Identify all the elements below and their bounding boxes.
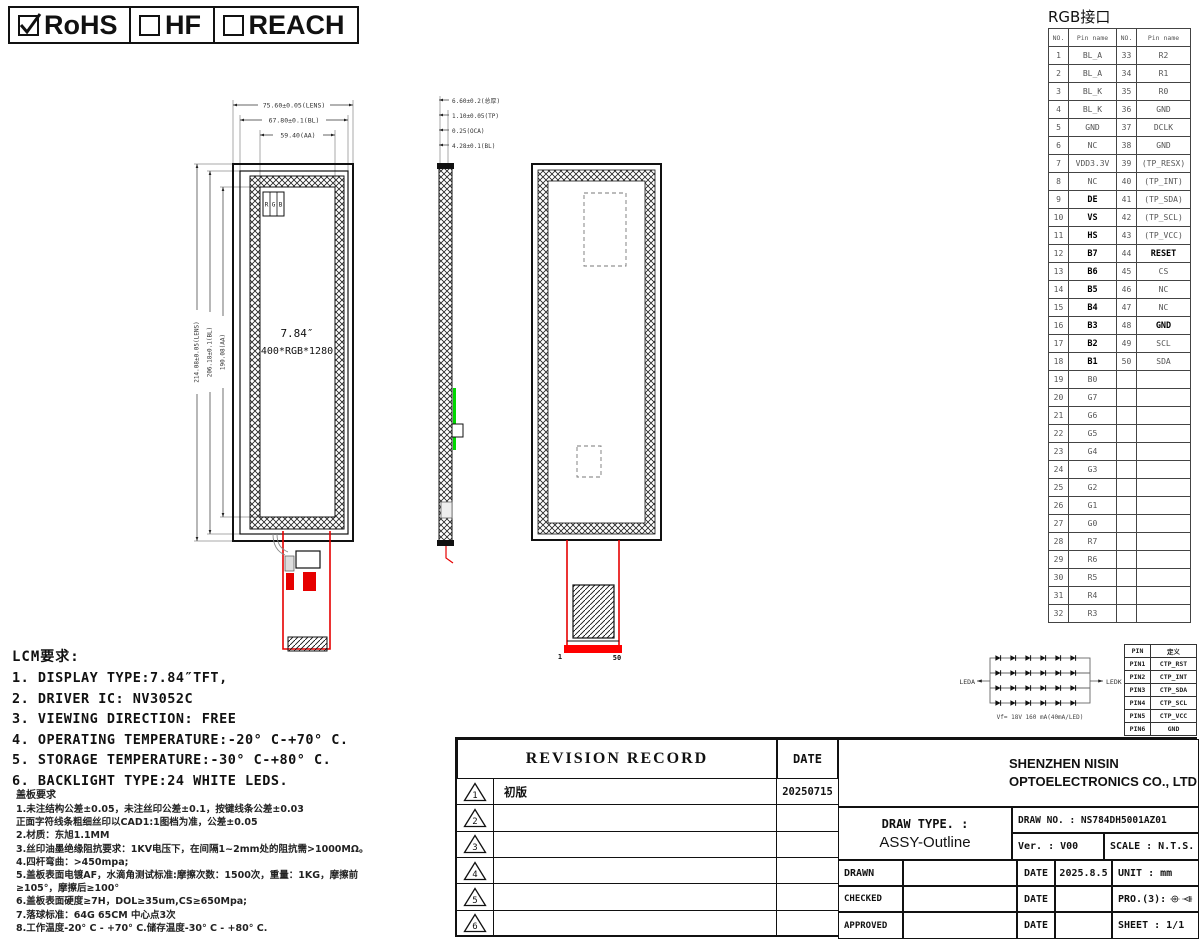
led-symbol: [1070, 670, 1075, 676]
pin-name: [1137, 407, 1191, 425]
pin-number: 31: [1049, 587, 1069, 605]
pin-name: [1137, 443, 1191, 461]
dim-bl-height: 206.18±0.1(BL): [207, 327, 214, 378]
revision-triangle-icon: 2: [463, 808, 487, 828]
svg-text:1: 1: [472, 791, 477, 801]
pin-number: 33: [1117, 47, 1137, 65]
pin-number: 15: [1049, 299, 1069, 317]
pin-name: R6: [1069, 551, 1117, 569]
pin-number: 43: [1117, 227, 1137, 245]
cover-item: 正面字符线条粗细丝印以CAD1:1图档为准，公差±0.05: [16, 816, 456, 829]
pin-name: [1137, 497, 1191, 515]
pin-name: (TP_SDA): [1137, 191, 1191, 209]
revision-description: [494, 832, 777, 857]
pin-name: R5: [1069, 569, 1117, 587]
pin-number: 14: [1049, 281, 1069, 299]
led-spec-caption: Vf= 18V 160 mA(40mA/LED): [997, 714, 1084, 721]
pin-name: B5: [1069, 281, 1117, 299]
title-block: REVISION RECORD DATE 1初版2025071523456 SH…: [455, 737, 1197, 937]
pin-number: 29: [1049, 551, 1069, 569]
pin-name: BL_A: [1069, 65, 1117, 83]
side-green-part: [453, 388, 456, 450]
led-symbol: [1070, 685, 1075, 691]
svg-text:4: 4: [472, 870, 477, 880]
cover-requirements-title: 盖板要求: [16, 786, 456, 801]
dim-oca-thickness: 0.25(OCA): [452, 128, 485, 135]
dim-aa-width: 59.40(AA): [280, 132, 315, 140]
dim-lens-width: 75.60±0.05(LENS): [263, 102, 326, 110]
cover-item: 4.四杆弯曲：>450mpa;: [16, 856, 456, 869]
pin-number: [1117, 461, 1137, 479]
compliance-label: HF: [165, 10, 201, 41]
pin-number: 1: [1049, 47, 1069, 65]
pin-name: (TP_VCC): [1137, 227, 1191, 245]
cover-item: ≥105°，摩擦后≥100°: [16, 882, 456, 895]
pin-number: 26: [1049, 497, 1069, 515]
lcm-requirements-title: LCM要求:: [12, 646, 482, 666]
svg-text:G: G: [272, 202, 276, 209]
revision-record-header: REVISION RECORD: [457, 739, 777, 779]
pin-number: 9: [1049, 191, 1069, 209]
pin-number: 25: [1049, 479, 1069, 497]
drawn-date-label: DATE: [1017, 860, 1055, 886]
pin-name: (TP_SCL): [1137, 209, 1191, 227]
ctp-pin-table: PIN定义PIN1CTP_RSTPIN2CTP_INTPIN3CTP_SDAPI…: [1124, 644, 1197, 736]
company-line2: OPTOELECTRONICS CO., LTD: [1009, 773, 1197, 791]
compliance-item-hf: HF: [129, 6, 215, 44]
pin-table-header: NO.: [1117, 29, 1137, 47]
cover-list: 1.未注结构公差±0.05，未注丝印公差±0.1，按键线条公差±0.03正面字符…: [16, 803, 456, 935]
led-symbol: [1025, 700, 1030, 706]
pin-table-header: NO.: [1049, 29, 1069, 47]
revision-number: 4: [457, 858, 494, 883]
pin-number: 6: [1049, 137, 1069, 155]
led-symbol: [1010, 685, 1015, 691]
company-name: SHENZHEN NISIN OPTOELECTRONICS CO., LTD: [838, 739, 1199, 807]
led-symbol: [995, 655, 1000, 661]
led-symbol: [1055, 655, 1060, 661]
pin1-label: 1: [558, 653, 562, 661]
pin-name: BL_K: [1069, 83, 1117, 101]
fpc-front: [273, 531, 330, 651]
fpc-stiffener: [573, 585, 614, 638]
pin-number: 23: [1049, 443, 1069, 461]
revision-triangle-icon: 6: [463, 913, 487, 933]
led-symbol: [1040, 700, 1045, 706]
pin50-label: 50: [613, 654, 621, 662]
revision-number: 2: [457, 805, 494, 830]
pin-number: [1117, 407, 1137, 425]
revision-row: 4: [457, 858, 838, 884]
pin-name: [1137, 605, 1191, 623]
revision-number: 6: [457, 911, 494, 936]
pin-name: [1137, 551, 1191, 569]
checked-checkbox-icon: [18, 15, 39, 36]
pin-name: [1137, 425, 1191, 443]
dim-bl-thickness: 4.28±0.1(BL): [452, 143, 495, 150]
pin-name: R4: [1069, 587, 1117, 605]
pin-name: R0: [1137, 83, 1191, 101]
pin-name: NC: [1069, 173, 1117, 191]
pin-table-header: Pin name: [1069, 29, 1117, 47]
pin-number: 38: [1117, 137, 1137, 155]
svg-text:R: R: [265, 202, 269, 209]
pin-number: 30: [1049, 569, 1069, 587]
scale-cell: SCALE : N.T.S.: [1104, 833, 1199, 860]
svg-text:6: 6: [472, 922, 477, 932]
pin-name: B2: [1069, 335, 1117, 353]
leda-label: LEDA: [959, 678, 975, 686]
revision-date: [777, 858, 838, 883]
svg-text:3: 3: [472, 843, 477, 853]
front-view: 75.60±0.05(LENS) 67.80±0.1(BL) 59.40(AA)…: [192, 100, 353, 651]
pin-name: G3: [1069, 461, 1117, 479]
fpc-rear: 1 50: [558, 540, 622, 662]
pin-number: 35: [1117, 83, 1137, 101]
pin-name: B6: [1069, 263, 1117, 281]
cover-requirements: 盖板要求 1.未注结构公差±0.05，未注丝印公差±0.1，按键线条公差±0.0…: [16, 786, 456, 935]
revision-number: 3: [457, 832, 494, 857]
pin-name: G0: [1069, 515, 1117, 533]
pin-name: VS: [1069, 209, 1117, 227]
pin-number: 49: [1117, 335, 1137, 353]
pin-number: 40: [1117, 173, 1137, 191]
fpc-connector: [564, 645, 622, 653]
pin-number: 47: [1117, 299, 1137, 317]
checked-name-cell: [903, 886, 1017, 912]
revision-row: 6: [457, 911, 838, 936]
revision-date-header: DATE: [777, 739, 838, 779]
revision-triangle-icon: 5: [463, 887, 487, 907]
pin-number: 45: [1117, 263, 1137, 281]
pin-number: [1117, 605, 1137, 623]
projection-label: PRO.(3):: [1118, 894, 1166, 905]
pin-number: 19: [1049, 371, 1069, 389]
pin-number: [1117, 371, 1137, 389]
pin-name: CS: [1137, 263, 1191, 281]
led-symbol: [1070, 655, 1075, 661]
dim-lens-height: 214.08±0.05(LENS): [194, 321, 201, 382]
pin-name: (TP_RESX): [1137, 155, 1191, 173]
pin-name: [1137, 371, 1191, 389]
cover-item: 5.盖板表面电镀AF，水滴角测试标准:摩擦次数：1500次，重量：1KG，摩擦前: [16, 869, 456, 882]
side-view: 6.60±0.2(总厚) 1.10±0.05(TP) 0.25(OCA) 4.2…: [437, 96, 500, 563]
pin-number: [1117, 443, 1137, 461]
pin-name: [1137, 515, 1191, 533]
checked-date-label: DATE: [1017, 886, 1055, 912]
led-symbol: [1010, 655, 1015, 661]
dim-tp-thickness: 1.10±0.05(TP): [452, 113, 499, 120]
lcm-item: 4. OPERATING TEMPERATURE:-20° C-+70° C.: [12, 730, 482, 751]
pin-name: G6: [1069, 407, 1117, 425]
led-symbol: [1025, 655, 1030, 661]
pin-name: GND: [1137, 101, 1191, 119]
ctp-pin-name: CTP_SCL: [1151, 697, 1197, 710]
ctp-pin-number: PIN3: [1125, 684, 1151, 697]
led-symbol: [1010, 670, 1015, 676]
pin-name: G4: [1069, 443, 1117, 461]
pin-name: R3: [1069, 605, 1117, 623]
pin-number: [1117, 425, 1137, 443]
dim-bl-width: 67.80±0.1(BL): [269, 117, 320, 125]
resolution-label: 400*RGB*1280: [261, 346, 333, 357]
revision-date: [777, 911, 838, 936]
pin-name: (TP_INT): [1137, 173, 1191, 191]
pin-name: DCLK: [1137, 119, 1191, 137]
checked-label: CHECKED: [838, 886, 903, 912]
revision-date: [777, 832, 838, 857]
dim-total-thickness: 6.60±0.2(总厚): [452, 97, 500, 105]
pin-number: [1117, 533, 1137, 551]
compliance-bar: RoHSHFREACH: [8, 6, 359, 44]
draw-type-label: DRAW TYPE. :: [882, 817, 969, 831]
dim-aa-height: 190.08(AA): [220, 334, 227, 370]
pin-name: B3: [1069, 317, 1117, 335]
screen-size-label: 7.84″: [280, 327, 313, 340]
ctp-pin-name: GND: [1151, 723, 1197, 736]
pin-number: 34: [1117, 65, 1137, 83]
drawn-label: DRAWN: [838, 860, 903, 886]
revision-row: 3: [457, 832, 838, 858]
rgb-pixel-marker: R G B: [263, 192, 284, 216]
revision-date: 20250715: [777, 779, 838, 804]
revision-row: 5: [457, 884, 838, 910]
svg-text:2: 2: [472, 817, 477, 827]
rgb-interface-title: RGB接口: [1048, 6, 1110, 27]
pin-number: 5: [1049, 119, 1069, 137]
pin-number: 16: [1049, 317, 1069, 335]
cover-item: 3.丝印油墨绝缘阻抗要求：1KV电压下，在间隔1~2mm处的阻抗需>1000MΩ…: [16, 843, 456, 856]
pin-number: [1117, 389, 1137, 407]
pin-name: R1: [1137, 65, 1191, 83]
pin-name: B4: [1069, 299, 1117, 317]
pin-number: [1117, 479, 1137, 497]
pin-number: 18: [1049, 353, 1069, 371]
pin-name: HS: [1069, 227, 1117, 245]
rgb-pin-table: NO.Pin nameNO.Pin name1BL_A33R22BL_A34R1…: [1048, 28, 1191, 623]
svg-text:B: B: [279, 202, 283, 209]
svg-text:5: 5: [472, 896, 477, 906]
pin-name: BL_K: [1069, 101, 1117, 119]
lcm-item: 5. STORAGE TEMPERATURE:-30° C-+80° C.: [12, 750, 482, 771]
revision-description: 初版: [494, 779, 777, 804]
pin-name: B7: [1069, 245, 1117, 263]
revision-description: [494, 911, 777, 936]
sheet-cell: SHEET : 1/1: [1112, 912, 1199, 939]
pin-name: RESET: [1137, 245, 1191, 263]
led-symbol: [1070, 700, 1075, 706]
led-symbol: [995, 670, 1000, 676]
revision-date: [777, 884, 838, 909]
pin-name: NC: [1069, 137, 1117, 155]
pin-name: B0: [1069, 371, 1117, 389]
pin-name: NC: [1137, 281, 1191, 299]
pin-number: 37: [1117, 119, 1137, 137]
pin-number: 17: [1049, 335, 1069, 353]
revision-triangle-icon: 4: [463, 861, 487, 881]
pin-name: [1137, 389, 1191, 407]
revision-triangle-icon: 3: [463, 834, 487, 854]
pin-number: 11: [1049, 227, 1069, 245]
approved-date-value: [1055, 912, 1112, 939]
pin-name: B1: [1069, 353, 1117, 371]
pin-number: [1117, 551, 1137, 569]
led-symbol: [995, 685, 1000, 691]
revision-triangle-icon: 1: [463, 782, 487, 802]
pin-name: G7: [1069, 389, 1117, 407]
pin-name: [1137, 587, 1191, 605]
revision-rows: 1初版2025071523456: [457, 779, 838, 936]
pin-number: 8: [1049, 173, 1069, 191]
draw-type-value: ASSY-Outline: [879, 834, 970, 851]
pin-number: 13: [1049, 263, 1069, 281]
pin-number: 42: [1117, 209, 1137, 227]
compliance-label: RoHS: [44, 10, 118, 41]
version-cell: Ver. : V00: [1012, 833, 1104, 860]
ctp-pin-number: PIN6: [1125, 723, 1151, 736]
pin-number: 41: [1117, 191, 1137, 209]
draw-type-cell: DRAW TYPE. : ASSY-Outline: [838, 807, 1012, 860]
engineering-drawing-sheet: { "compliance": {"items":[ {"label":"RoH…: [0, 0, 1200, 939]
pin-number: 36: [1117, 101, 1137, 119]
pin-name: SCL: [1137, 335, 1191, 353]
ledk-label: LEDK: [1106, 678, 1122, 686]
pin-name: DE: [1069, 191, 1117, 209]
drawn-date-value: 2025.8.5: [1055, 860, 1112, 886]
pin-name: R2: [1137, 47, 1191, 65]
unchecked-checkbox-icon: [139, 15, 160, 36]
pin-number: 48: [1117, 317, 1137, 335]
revision-description: [494, 884, 777, 909]
lcm-requirements: LCM要求: 1. DISPLAY TYPE:7.84″TFT,2. DRIVE…: [12, 646, 482, 791]
pin-number: 39: [1117, 155, 1137, 173]
pin-number: 46: [1117, 281, 1137, 299]
lcm-item: 2. DRIVER IC: NV3052C: [12, 689, 482, 710]
pin-number: 22: [1049, 425, 1069, 443]
pin-number: 4: [1049, 101, 1069, 119]
pin-name: G2: [1069, 479, 1117, 497]
lcm-item: 3. VIEWING DIRECTION: FREE: [12, 709, 482, 730]
check-mark-icon: [17, 11, 43, 37]
projection-cell: PRO.(3):: [1112, 886, 1199, 912]
unit-cell: UNIT : mm: [1112, 860, 1199, 886]
checked-date-value: [1055, 886, 1112, 912]
pin-number: 27: [1049, 515, 1069, 533]
pin-number: [1117, 587, 1137, 605]
ctp-pin-number: PIN5: [1125, 710, 1151, 723]
pin-number: [1117, 497, 1137, 515]
led-symbol: [1040, 670, 1045, 676]
pin-name: [1137, 569, 1191, 587]
pin-number: 28: [1049, 533, 1069, 551]
revision-description: [494, 805, 777, 830]
compliance-label: REACH: [249, 10, 345, 41]
pin-table-header: Pin name: [1137, 29, 1191, 47]
compliance-item-reach: REACH: [213, 6, 359, 44]
pin-name: GND: [1137, 317, 1191, 335]
pin-number: 50: [1117, 353, 1137, 371]
ctp-pin-name: CTP_INT: [1151, 671, 1197, 684]
approved-label: APPROVED: [838, 912, 903, 939]
led-symbol: [1025, 670, 1030, 676]
cover-item: 7.落球标准：64G 65CM 中心点3次: [16, 909, 456, 922]
unchecked-checkbox-icon: [223, 15, 244, 36]
approved-date-label: DATE: [1017, 912, 1055, 939]
cover-item: 6.盖板表面硬度≥7H，DOL≥35um,CS≥650Mpa;: [16, 895, 456, 908]
pin-number: 24: [1049, 461, 1069, 479]
pin-name: R7: [1069, 533, 1117, 551]
pin-name: BL_A: [1069, 47, 1117, 65]
led-symbol: [1055, 670, 1060, 676]
ctp-pin-number: PIN1: [1125, 658, 1151, 671]
pin-number: 20: [1049, 389, 1069, 407]
compliance-item-rohs: RoHS: [8, 6, 132, 44]
cover-item: 2.材质：东旭1.1MM: [16, 829, 456, 842]
pin-number: 12: [1049, 245, 1069, 263]
led-symbol: [1010, 700, 1015, 706]
pin-name: [1137, 533, 1191, 551]
led-symbol: [995, 700, 1000, 706]
led-symbol: [1055, 700, 1060, 706]
pin-name: G5: [1069, 425, 1117, 443]
pin-name: NC: [1137, 299, 1191, 317]
pin-number: [1117, 515, 1137, 533]
pin-name: GND: [1069, 119, 1117, 137]
pin-number: 3: [1049, 83, 1069, 101]
pin-name: SDA: [1137, 353, 1191, 371]
ctp-table-header: 定义: [1151, 645, 1197, 658]
cover-item: 1.未注结构公差±0.05，未注丝印公差±0.1，按键线条公差±0.03: [16, 803, 456, 816]
revision-number: 1: [457, 779, 494, 804]
revision-row: 2: [457, 805, 838, 831]
pin-number: 44: [1117, 245, 1137, 263]
ctp-pin-name: CTP_VCC: [1151, 710, 1197, 723]
led-circuit-diagram: LEDA LEDK Vf= 18V 160 mA(40mA/LED): [959, 655, 1121, 721]
rear-view: 1 50: [532, 164, 661, 662]
pin-name: [1137, 479, 1191, 497]
pin-number: 7: [1049, 155, 1069, 173]
lcm-list: 1. DISPLAY TYPE:7.84″TFT,2. DRIVER IC: N…: [12, 668, 482, 791]
led-symbol: [1055, 685, 1060, 691]
company-line1: SHENZHEN NISIN: [1009, 755, 1197, 773]
side-stack: [439, 168, 452, 542]
led-symbol: [1040, 685, 1045, 691]
ctp-pin-number: PIN2: [1125, 671, 1151, 684]
ctp-table-header: PIN: [1125, 645, 1151, 658]
drawn-name-cell: [903, 860, 1017, 886]
draw-no-cell: DRAW NO. : NS784DH5001AZ01: [1012, 807, 1199, 833]
pin-number: 32: [1049, 605, 1069, 623]
pin-number: 21: [1049, 407, 1069, 425]
pin-name: G1: [1069, 497, 1117, 515]
pin-number: [1117, 569, 1137, 587]
pin-name: [1137, 461, 1191, 479]
pin-name: GND: [1137, 137, 1191, 155]
led-array: [995, 655, 1075, 706]
pin-number: 10: [1049, 209, 1069, 227]
ctp-pin-name: CTP_SDA: [1151, 684, 1197, 697]
approved-name-cell: [903, 912, 1017, 939]
lcm-item: 1. DISPLAY TYPE:7.84″TFT,: [12, 668, 482, 689]
led-symbol: [1040, 655, 1045, 661]
revision-date: [777, 805, 838, 830]
ctp-pin-number: PIN4: [1125, 697, 1151, 710]
cover-item: 8.工作温度-20° C - +70° C.储存温度-30° C - +80° …: [16, 922, 456, 935]
revision-number: 5: [457, 884, 494, 909]
pin-number: 2: [1049, 65, 1069, 83]
revision-description: [494, 858, 777, 883]
pin-name: VDD3.3V: [1069, 155, 1117, 173]
